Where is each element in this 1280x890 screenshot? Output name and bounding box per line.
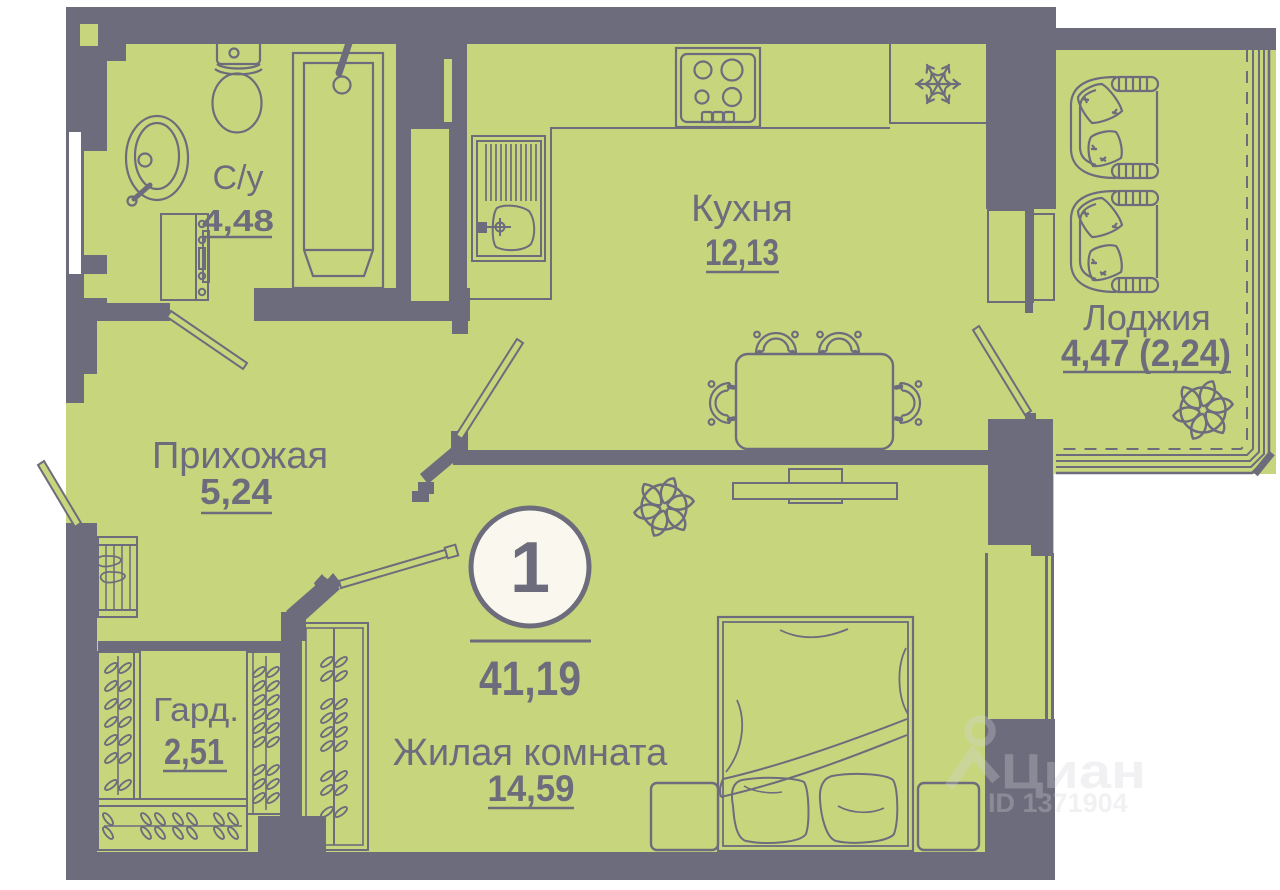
svg-text:5,24: 5,24 [200,471,272,512]
svg-text:Гард.: Гард. [153,691,239,728]
svg-text:2,51: 2,51 [164,731,224,772]
svg-text:4,47 (2,24): 4,47 (2,24) [1061,333,1231,375]
svg-text:Кухня: Кухня [691,188,793,230]
svg-text:41,19: 41,19 [479,653,581,706]
svg-text:ID 1371904: ID 1371904 [988,788,1128,818]
svg-text:С/у: С/у [213,159,264,197]
svg-text:12,13: 12,13 [705,232,779,273]
svg-text:4,48: 4,48 [202,203,274,238]
svg-text:14,59: 14,59 [488,768,575,809]
svg-text:Лоджия: Лоджия [1083,297,1211,338]
svg-text:1: 1 [510,528,550,608]
